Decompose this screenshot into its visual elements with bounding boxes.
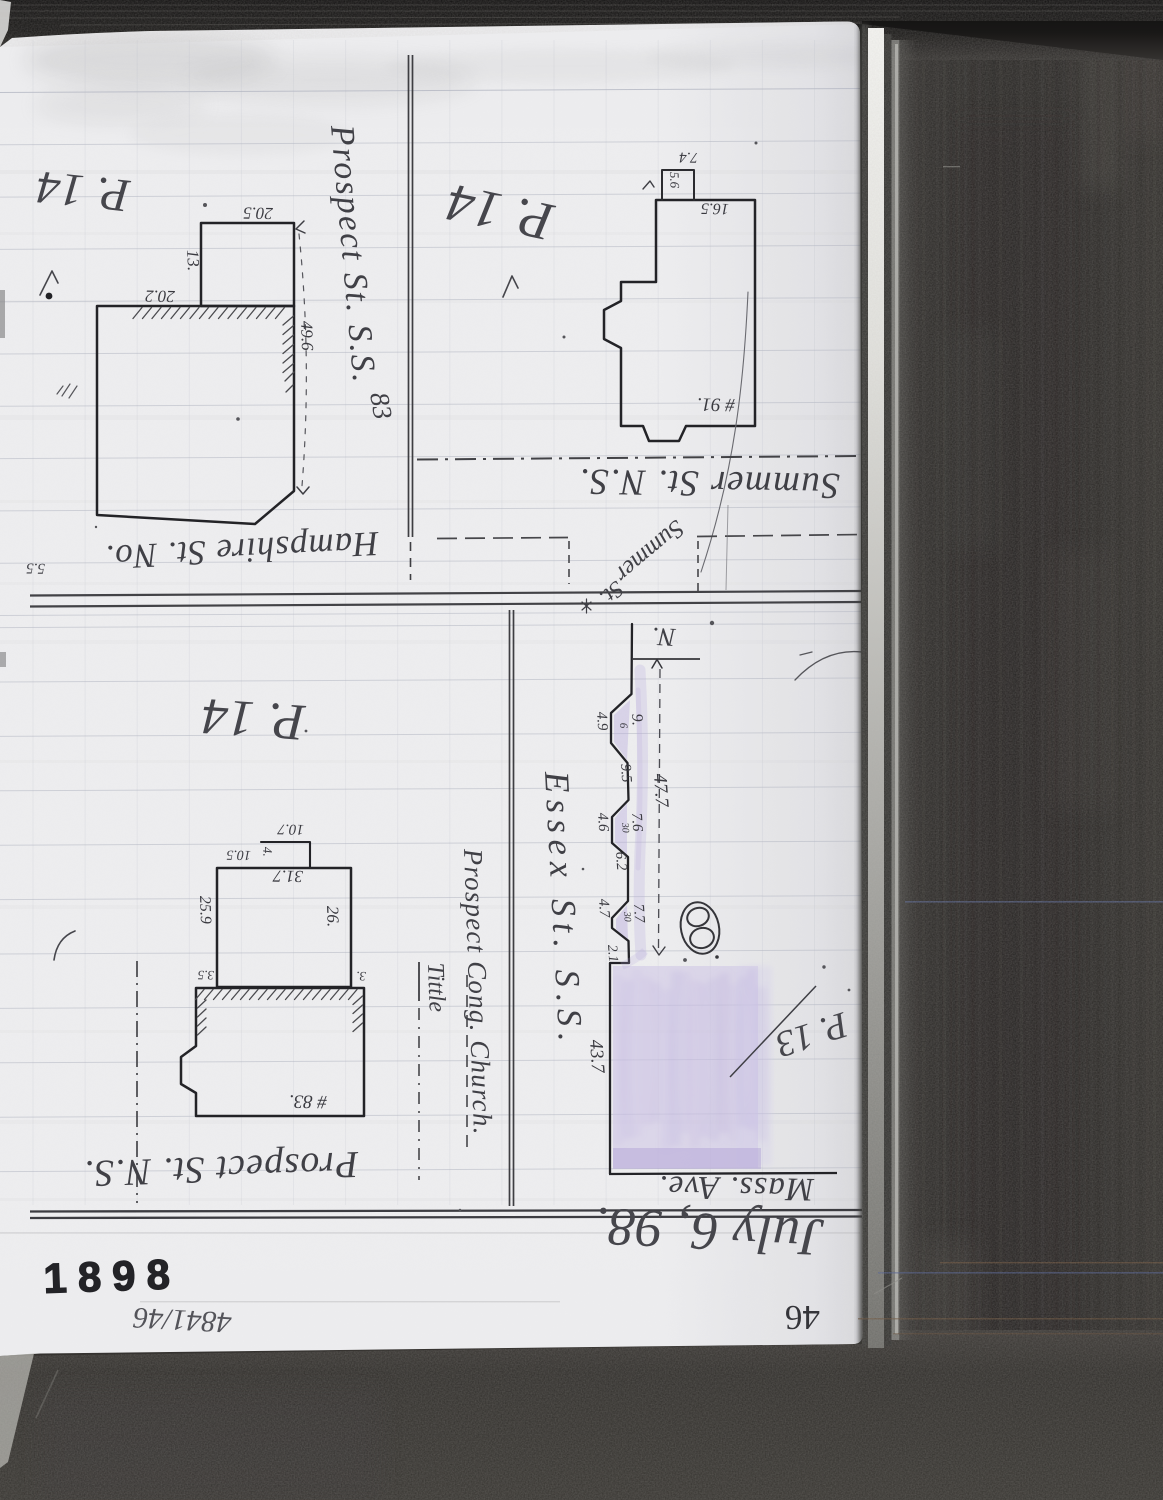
svg-text:2.1: 2.1 xyxy=(604,944,620,963)
svg-text:4.7: 4.7 xyxy=(595,898,612,919)
svg-text:# 83.: # 83. xyxy=(289,1090,327,1112)
svg-text:10.7: 10.7 xyxy=(276,821,304,837)
svg-text:N.: N. xyxy=(651,622,677,652)
svg-text:31.7: 31.7 xyxy=(271,866,304,886)
svg-text:20.5: 20.5 xyxy=(243,203,273,223)
svg-text:9.: 9. xyxy=(628,713,646,726)
svg-text:Tittle: Tittle xyxy=(422,962,450,1013)
svg-text:10.5: 10.5 xyxy=(226,847,251,862)
svg-text:30: 30 xyxy=(619,821,631,833)
svg-text:7.4: 7.4 xyxy=(679,149,699,165)
svg-text:P. 14: P. 14 xyxy=(200,687,308,751)
svg-text:4.6: 4.6 xyxy=(594,812,611,832)
svg-text:3.5: 3.5 xyxy=(197,968,215,983)
svg-text:25.9: 25.9 xyxy=(196,896,214,925)
svg-text:July 6, 98.: July 6, 98. xyxy=(592,1196,825,1268)
svg-text:13.: 13. xyxy=(183,249,203,271)
svg-text:5.6: 5.6 xyxy=(667,172,683,189)
svg-text:16.5: 16.5 xyxy=(701,200,729,217)
svg-text:5.5: 5.5 xyxy=(26,560,46,576)
svg-text:6.2: 6.2 xyxy=(612,851,629,871)
svg-text:47.7: 47.7 xyxy=(649,773,672,809)
svg-text:46: 46 xyxy=(785,1298,820,1337)
svg-text:9.5: 9.5 xyxy=(617,763,634,783)
svg-text:43.7: 43.7 xyxy=(585,1039,608,1075)
svg-text:P. 14: P. 14 xyxy=(34,160,133,222)
svg-text:3.: 3. xyxy=(356,969,367,984)
svg-text:4.: 4. xyxy=(260,846,275,857)
svg-text:30: 30 xyxy=(621,910,633,922)
svg-text:20.2: 20.2 xyxy=(144,286,175,306)
svg-text:1898: 1898 xyxy=(43,1250,182,1302)
svg-text:4841/46: 4841/46 xyxy=(132,1301,232,1339)
svg-text:26.: 26. xyxy=(323,905,343,927)
svg-text:4.9: 4.9 xyxy=(593,711,610,731)
svg-text:# 91.: # 91. xyxy=(697,393,735,415)
svg-text:49.6: 49.6 xyxy=(297,320,317,351)
svg-text:Summer St. N.S.: Summer St. N.S. xyxy=(577,460,840,506)
svg-text:83: 83 xyxy=(364,390,398,422)
